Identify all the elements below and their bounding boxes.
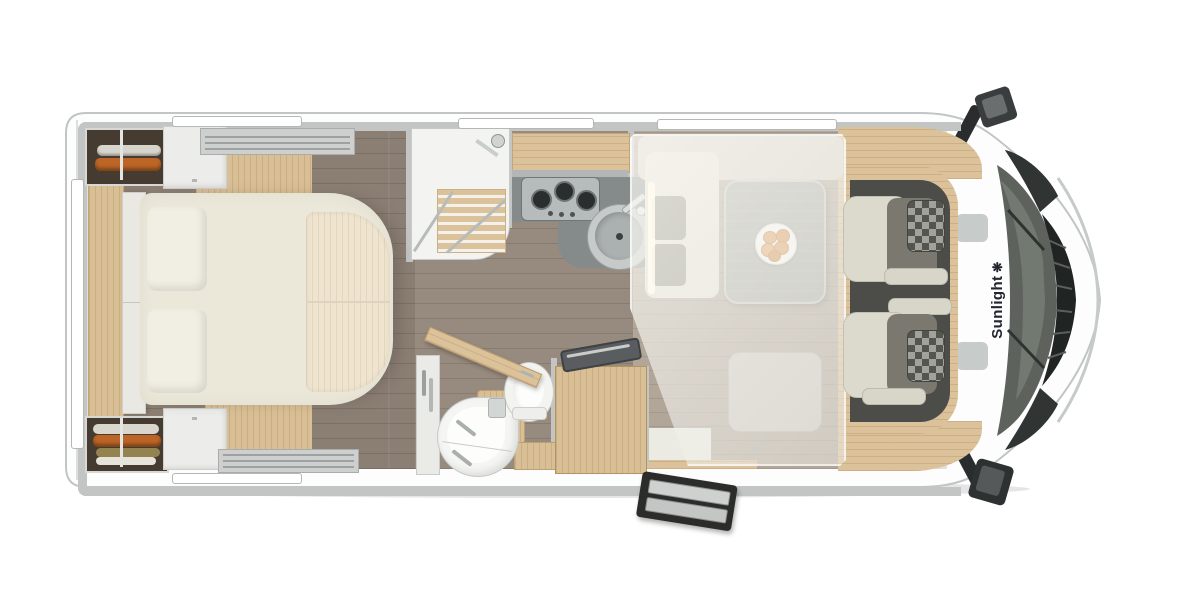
cabinet-handle-2 [192,417,197,420]
door-handle [520,370,534,378]
sink-drain [616,233,623,240]
seat-armrest [862,388,926,405]
stove-knob [570,212,575,217]
island-bed [140,193,393,405]
garment-white [96,457,156,465]
vent-slats [205,133,350,150]
corner-washbasin [437,397,519,477]
sunlight-logo-icon: ❋ [990,261,1005,272]
wardrobe-bottom-left [85,416,169,473]
wardrobe-divider-2 [120,418,123,467]
brand-name: Sunlight [989,276,1006,339]
floorplan-stage: Sunlight❋ [0,0,1200,600]
toilet-flush-panel [488,398,506,418]
foot-panel-seam [306,301,390,303]
top-window-1 [172,116,302,127]
top-window-3 [657,119,837,130]
wardrobe-divider [120,130,123,180]
fridge-cabinet [555,366,647,474]
toiletry-chrome [422,370,426,396]
cabinet-handle [192,179,197,182]
garment-orange-2 [93,435,161,447]
stove-knob [548,211,553,216]
roof-vent-top [200,128,355,155]
burner [576,190,597,211]
rear-window [71,179,84,449]
brand-logo: Sunlight❋ [989,244,1007,356]
garment-olive [96,448,160,457]
toilet-seat-hinge [512,407,547,420]
burner [531,189,552,210]
bathroom-mirror-cabinet [416,355,440,475]
seat-headrest-checker [907,330,945,382]
top-window-2 [458,118,594,129]
garment-silver-2 [93,424,159,434]
wardrobe-top-left [85,128,169,186]
vent-slats [223,454,354,468]
kitchen-locker-edge [512,170,628,177]
headboard-panel [88,178,124,452]
pillow [147,207,207,291]
kitchen-overhead-locker [512,133,630,173]
toiletry-chrome-2 [429,378,433,412]
garment-silver [97,145,161,156]
pillow [147,309,207,393]
seat-armrest [884,268,948,285]
burner [554,181,575,202]
roof-vent-bottom [218,449,359,473]
cab-seat-passenger [843,312,955,398]
stove-knob [559,212,564,217]
bathroom-shelf [514,442,558,470]
seat-headrest-checker [907,200,945,252]
stove-frame [521,177,600,221]
bottom-window-1 [172,473,302,484]
bed-foot-panel [306,212,390,392]
garment-orange [95,158,161,171]
shower-head-icon [491,134,505,148]
drop-bed-edge-highlight [648,182,655,294]
